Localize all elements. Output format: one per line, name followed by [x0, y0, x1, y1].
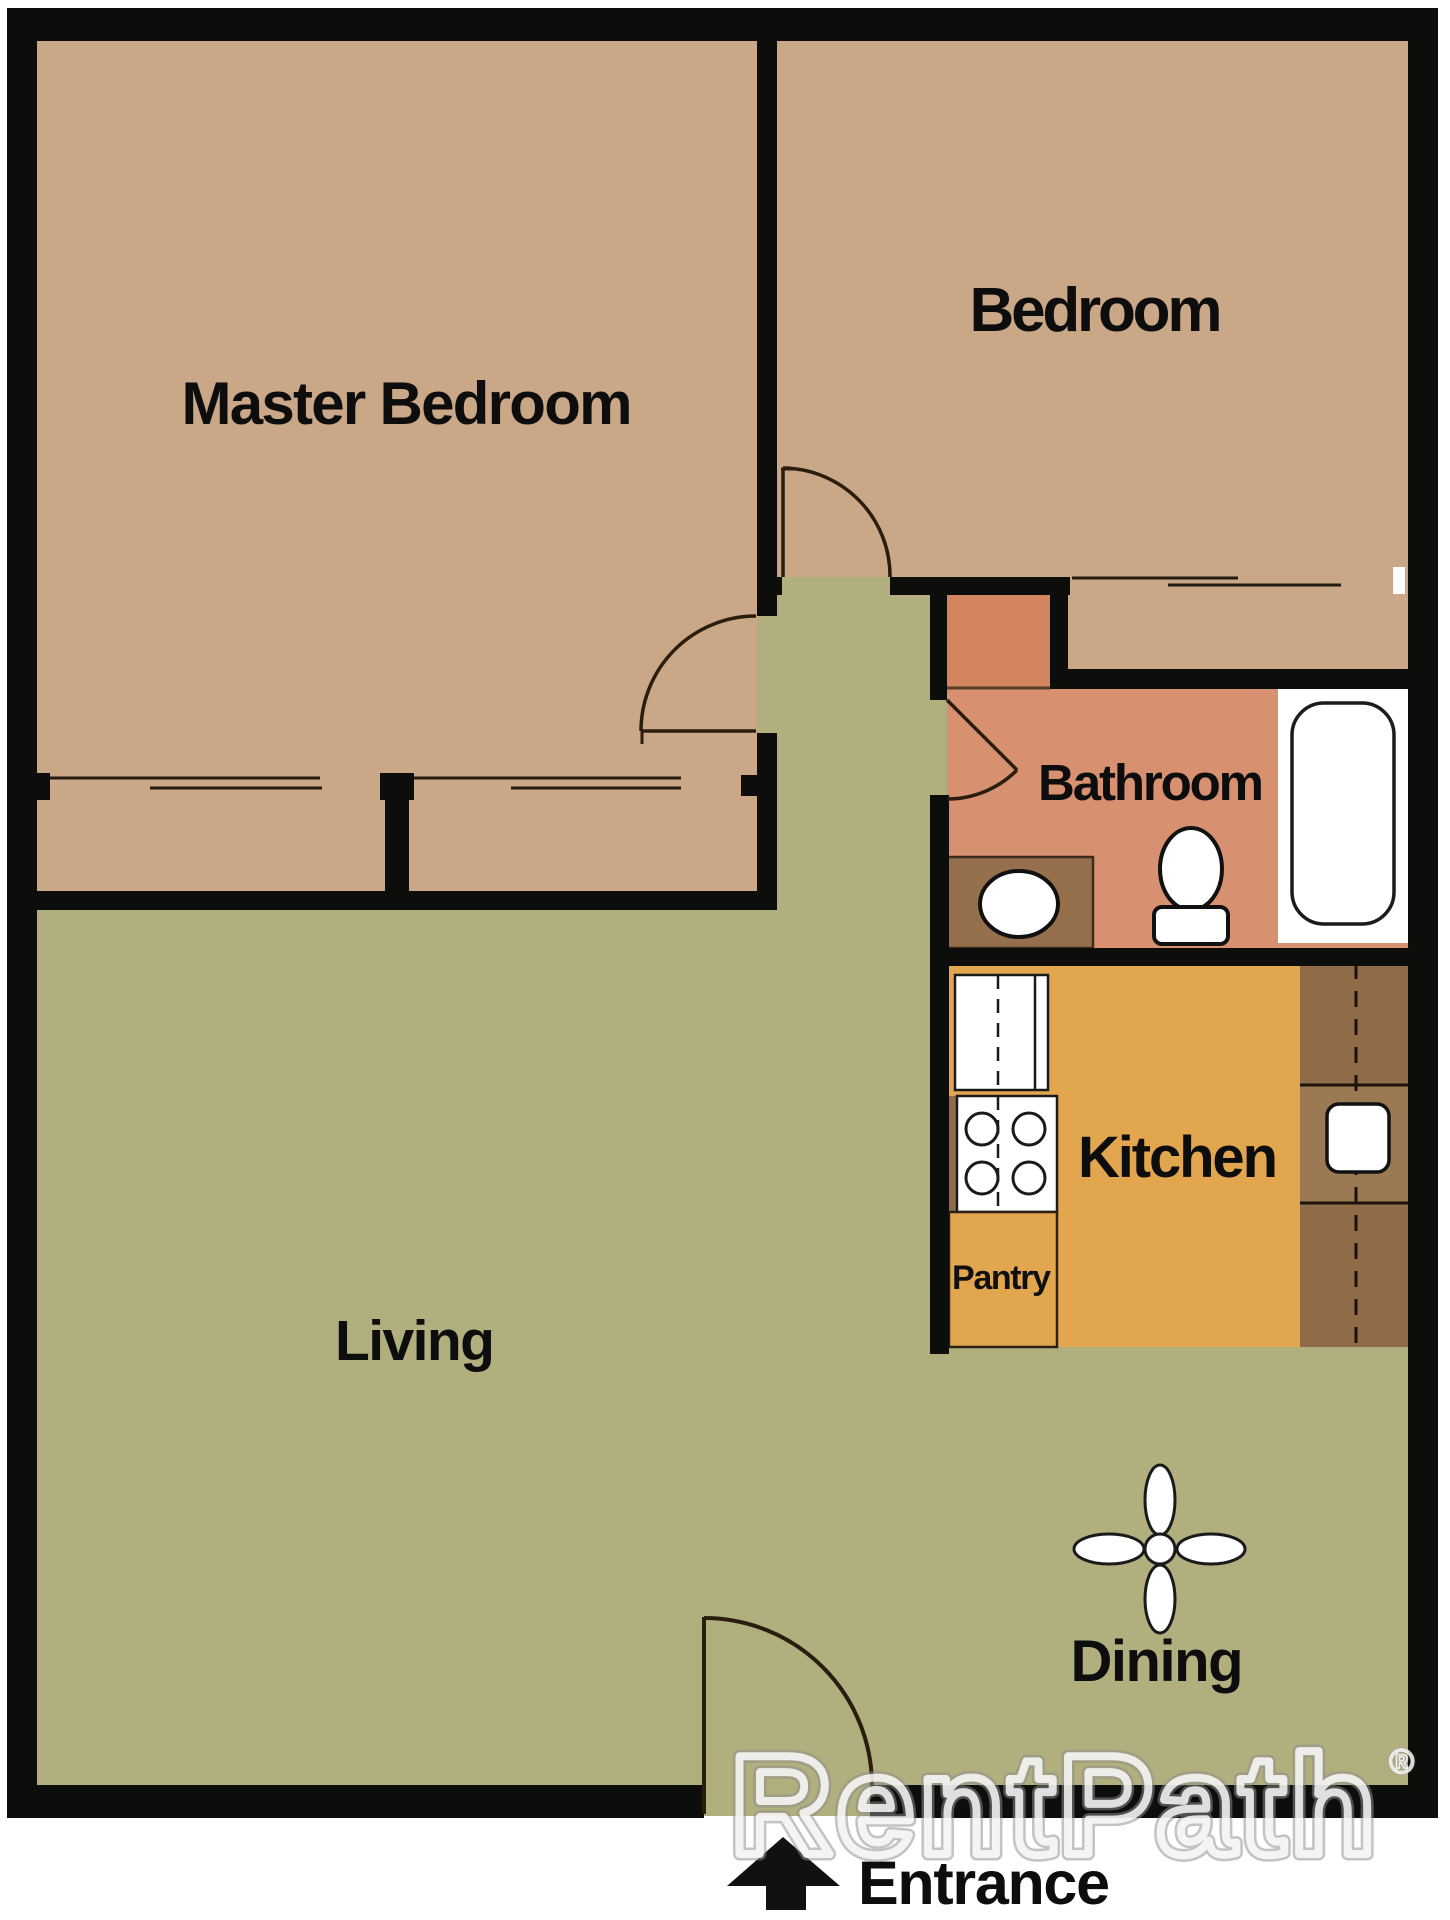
- svg-text:Kitchen: Kitchen: [1078, 1125, 1278, 1190]
- svg-text:Living: Living: [335, 1309, 495, 1373]
- svg-text:Bathroom: Bathroom: [1038, 754, 1264, 811]
- svg-text:®: ®: [1389, 1743, 1414, 1781]
- svg-text:Master Bedroom: Master Bedroom: [182, 370, 633, 437]
- svg-text:Pantry: Pantry: [952, 1259, 1051, 1297]
- svg-text:Dining: Dining: [1071, 1629, 1244, 1694]
- svg-text:Bedroom: Bedroom: [970, 276, 1223, 345]
- svg-text:RentPath: RentPath: [730, 1726, 1376, 1885]
